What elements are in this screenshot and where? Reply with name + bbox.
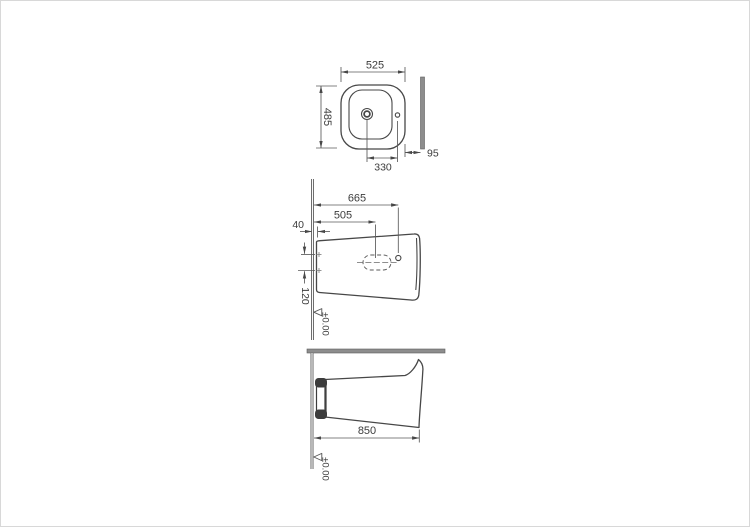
level-marker: ±0.00 (314, 309, 331, 336)
dim-label-wall-gap: 95 (427, 148, 439, 160)
dim-label-505: 505 (334, 210, 352, 222)
dim-side-505: 505 (314, 210, 376, 259)
dim-plan-hole-offset: 330 (367, 120, 398, 174)
dim-label-120: 120 (299, 287, 311, 305)
bracket-bottom-cap (315, 410, 327, 420)
installation-view: 850 ±0.00 (307, 349, 445, 481)
side-elevation-view: 665 505 40 120 (292, 179, 420, 340)
rim-inner-line (416, 238, 417, 290)
technical-drawing-canvas: 525 485 330 95 (0, 0, 750, 527)
dim-label-hole-offset: 330 (374, 162, 392, 174)
drain-circle (362, 109, 373, 120)
level-label: ±0.00 (320, 312, 331, 336)
fixing-hole-marker (317, 252, 322, 273)
supply-hole (396, 255, 401, 260)
dim-install-850: 850 (314, 425, 419, 443)
bracket-top-cap (315, 378, 327, 388)
drawing-svg: 525 485 330 95 (1, 1, 750, 527)
dim-label-850: 850 (358, 425, 376, 437)
product-side-outline (317, 234, 421, 300)
product-install-outline (325, 360, 423, 428)
dim-label-665: 665 (348, 193, 366, 205)
level-marker-2: ±0.00 (314, 453, 331, 480)
level-label: ±0.00 (320, 457, 331, 481)
dim-side-665: 665 (314, 193, 398, 254)
plan-view: 525 485 330 95 (316, 60, 439, 174)
tap-hole (395, 113, 399, 117)
dim-plan-depth: 485 (316, 86, 337, 148)
wall-section-bar (421, 77, 425, 149)
dim-label-depth: 485 (321, 108, 333, 126)
drain-inner-circle (364, 111, 370, 117)
wall-section-bar-2 (307, 349, 445, 353)
dim-plan-width: 525 (341, 60, 405, 83)
dim-label-40: 40 (292, 219, 304, 231)
dim-label-width: 525 (366, 60, 384, 72)
